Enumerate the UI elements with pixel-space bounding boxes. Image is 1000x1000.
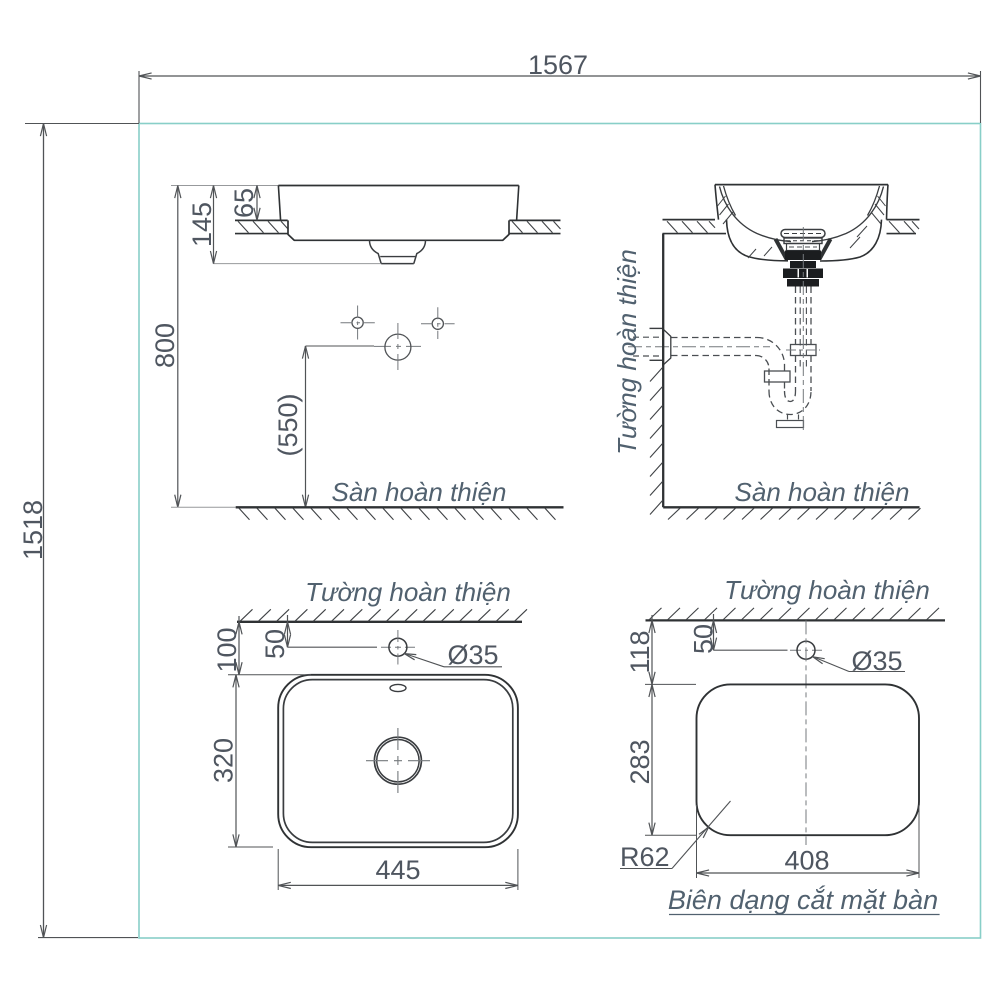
svg-text:65: 65 (229, 188, 259, 218)
svg-text:Sàn hoàn thiện: Sàn hoàn thiện (735, 477, 910, 507)
svg-text:Ø35: Ø35 (851, 646, 902, 676)
svg-text:283: 283 (625, 739, 655, 784)
svg-text:1567: 1567 (528, 50, 588, 80)
svg-text:145: 145 (187, 202, 217, 247)
svg-text:50: 50 (260, 629, 290, 659)
svg-text:50: 50 (689, 624, 719, 654)
svg-text:Tường hoàn thiện: Tường hoàn thiện (612, 249, 642, 455)
svg-text:320: 320 (209, 738, 239, 783)
svg-text:(550): (550) (273, 393, 303, 456)
svg-text:445: 445 (375, 855, 420, 885)
svg-text:R62: R62 (620, 842, 670, 872)
svg-text:408: 408 (784, 846, 829, 876)
svg-text:1518: 1518 (18, 500, 48, 560)
svg-text:118: 118 (625, 630, 655, 673)
svg-text:Tường hoàn thiện: Tường hoàn thiện (305, 577, 511, 607)
svg-text:Biên dạng cắt mặt bàn: Biên dạng cắt mặt bàn (668, 884, 938, 915)
svg-text:Ø35: Ø35 (447, 640, 498, 670)
svg-text:100: 100 (212, 627, 242, 672)
svg-text:Tường hoàn thiện: Tường hoàn thiện (724, 575, 930, 605)
svg-text:800: 800 (150, 323, 180, 368)
svg-text:Sàn hoàn thiện: Sàn hoàn thiện (332, 477, 507, 507)
